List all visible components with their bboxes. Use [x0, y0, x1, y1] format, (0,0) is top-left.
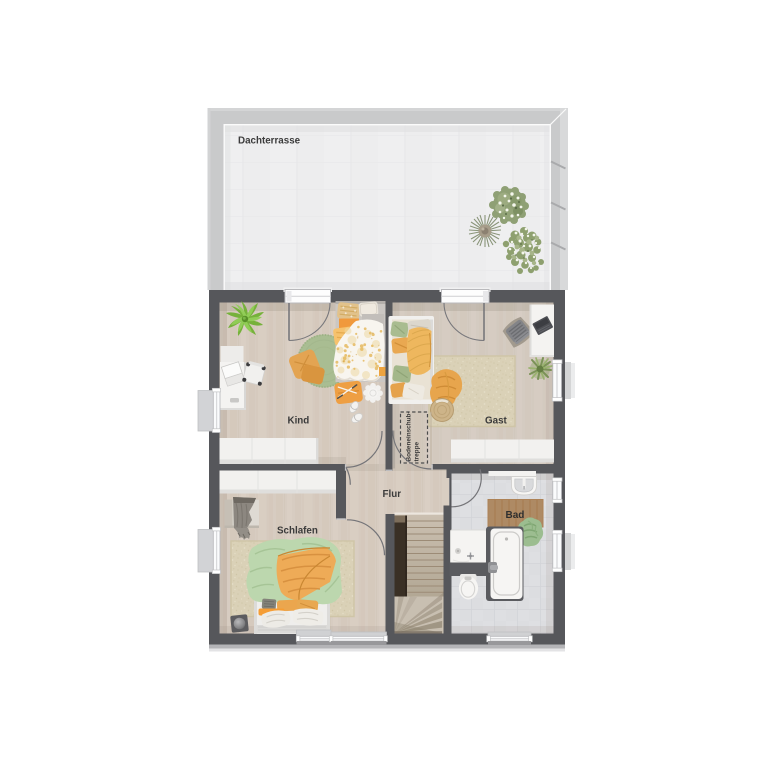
svg-text:Dachterrasse: Dachterrasse: [238, 136, 301, 147]
svg-text:Kind: Kind: [288, 416, 310, 427]
svg-text:Schlafen: Schlafen: [277, 526, 318, 537]
svg-text:Gast: Gast: [485, 416, 508, 427]
svg-text:Bodeneinschub-: Bodeneinschub-: [406, 411, 413, 461]
svg-text:treppe: treppe: [414, 442, 421, 462]
svg-text:Flur: Flur: [383, 489, 402, 500]
svg-text:Bad: Bad: [506, 510, 525, 521]
